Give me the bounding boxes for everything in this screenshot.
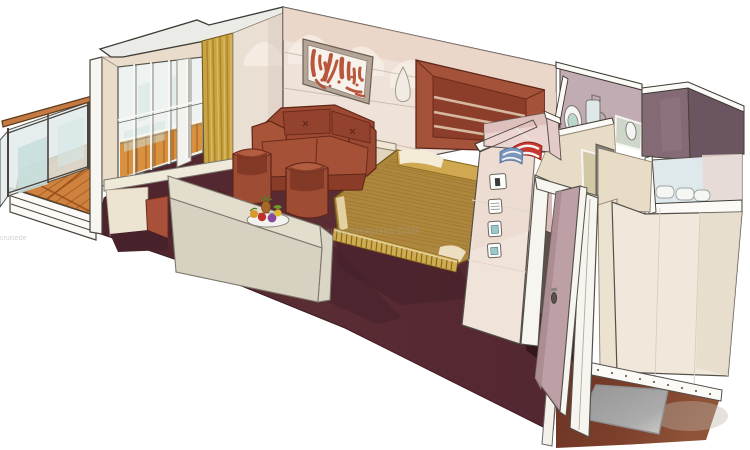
svg-text:cruisede: cruisede <box>0 235 27 242</box>
svg-text:cruisedeckplans.COM: cruisedeckplans.COM <box>322 226 420 236</box>
